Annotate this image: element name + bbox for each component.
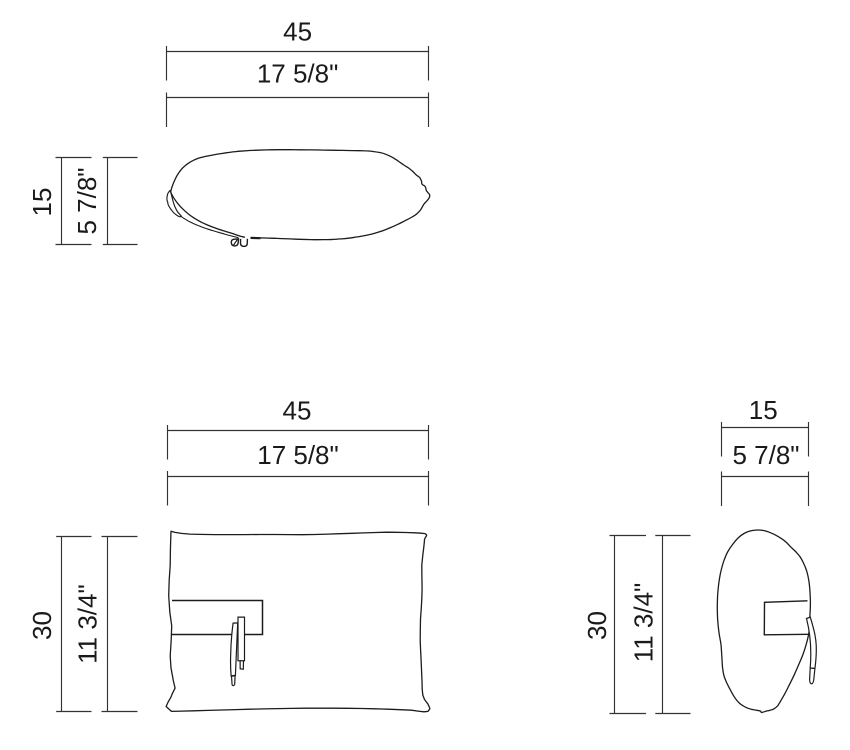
svg-text:30: 30	[582, 611, 612, 640]
svg-text:5 7/8": 5 7/8"	[72, 167, 102, 234]
svg-text:15: 15	[749, 395, 778, 425]
svg-text:11 3/4": 11 3/4"	[629, 583, 659, 663]
svg-text:17 5/8": 17 5/8"	[257, 440, 339, 470]
svg-text:30: 30	[27, 611, 57, 640]
svg-text:17 5/8": 17 5/8"	[257, 59, 339, 89]
svg-text:15: 15	[27, 188, 57, 217]
svg-text:45: 45	[283, 17, 312, 47]
svg-text:5 7/8": 5 7/8"	[732, 440, 799, 470]
svg-text:11 3/4": 11 3/4"	[73, 584, 103, 664]
svg-text:45: 45	[283, 396, 312, 426]
